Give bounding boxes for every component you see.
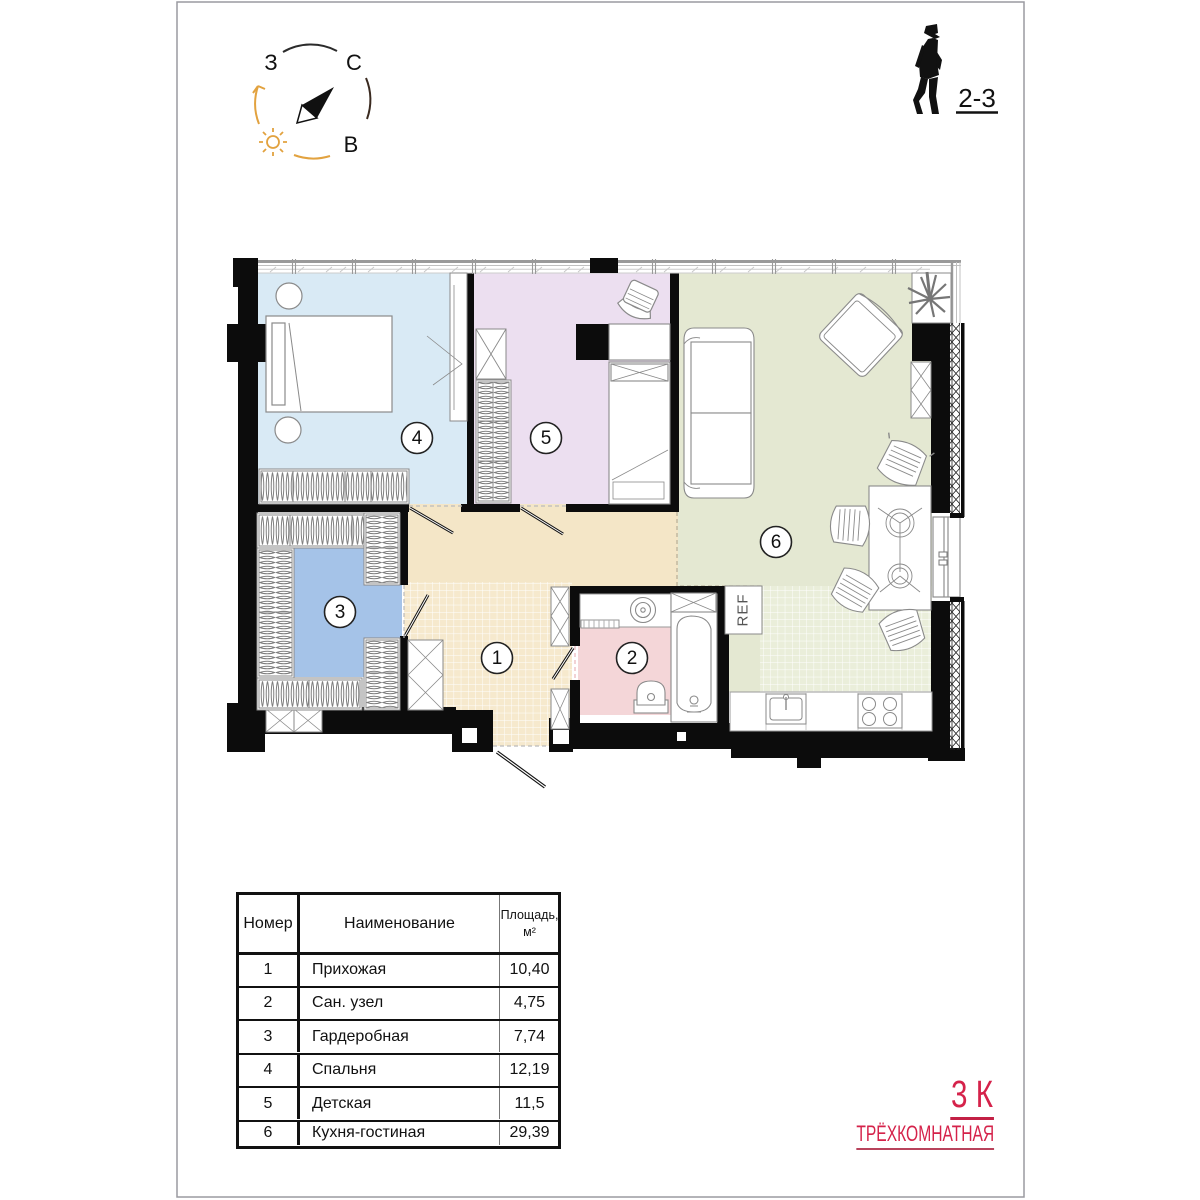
svg-text:4: 4 <box>412 428 423 449</box>
svg-text:2: 2 <box>627 648 638 669</box>
svg-text:С: С <box>346 50 362 75</box>
svg-text:З: З <box>264 50 277 75</box>
svg-text:2-3: 2-3 <box>958 83 996 113</box>
svg-text:1: 1 <box>492 648 503 669</box>
svg-text:REF: REF <box>735 594 752 627</box>
svg-text:3: 3 <box>335 602 346 623</box>
svg-text:6: 6 <box>771 532 782 553</box>
svg-text:В: В <box>344 132 359 157</box>
svg-text:5: 5 <box>541 428 552 449</box>
